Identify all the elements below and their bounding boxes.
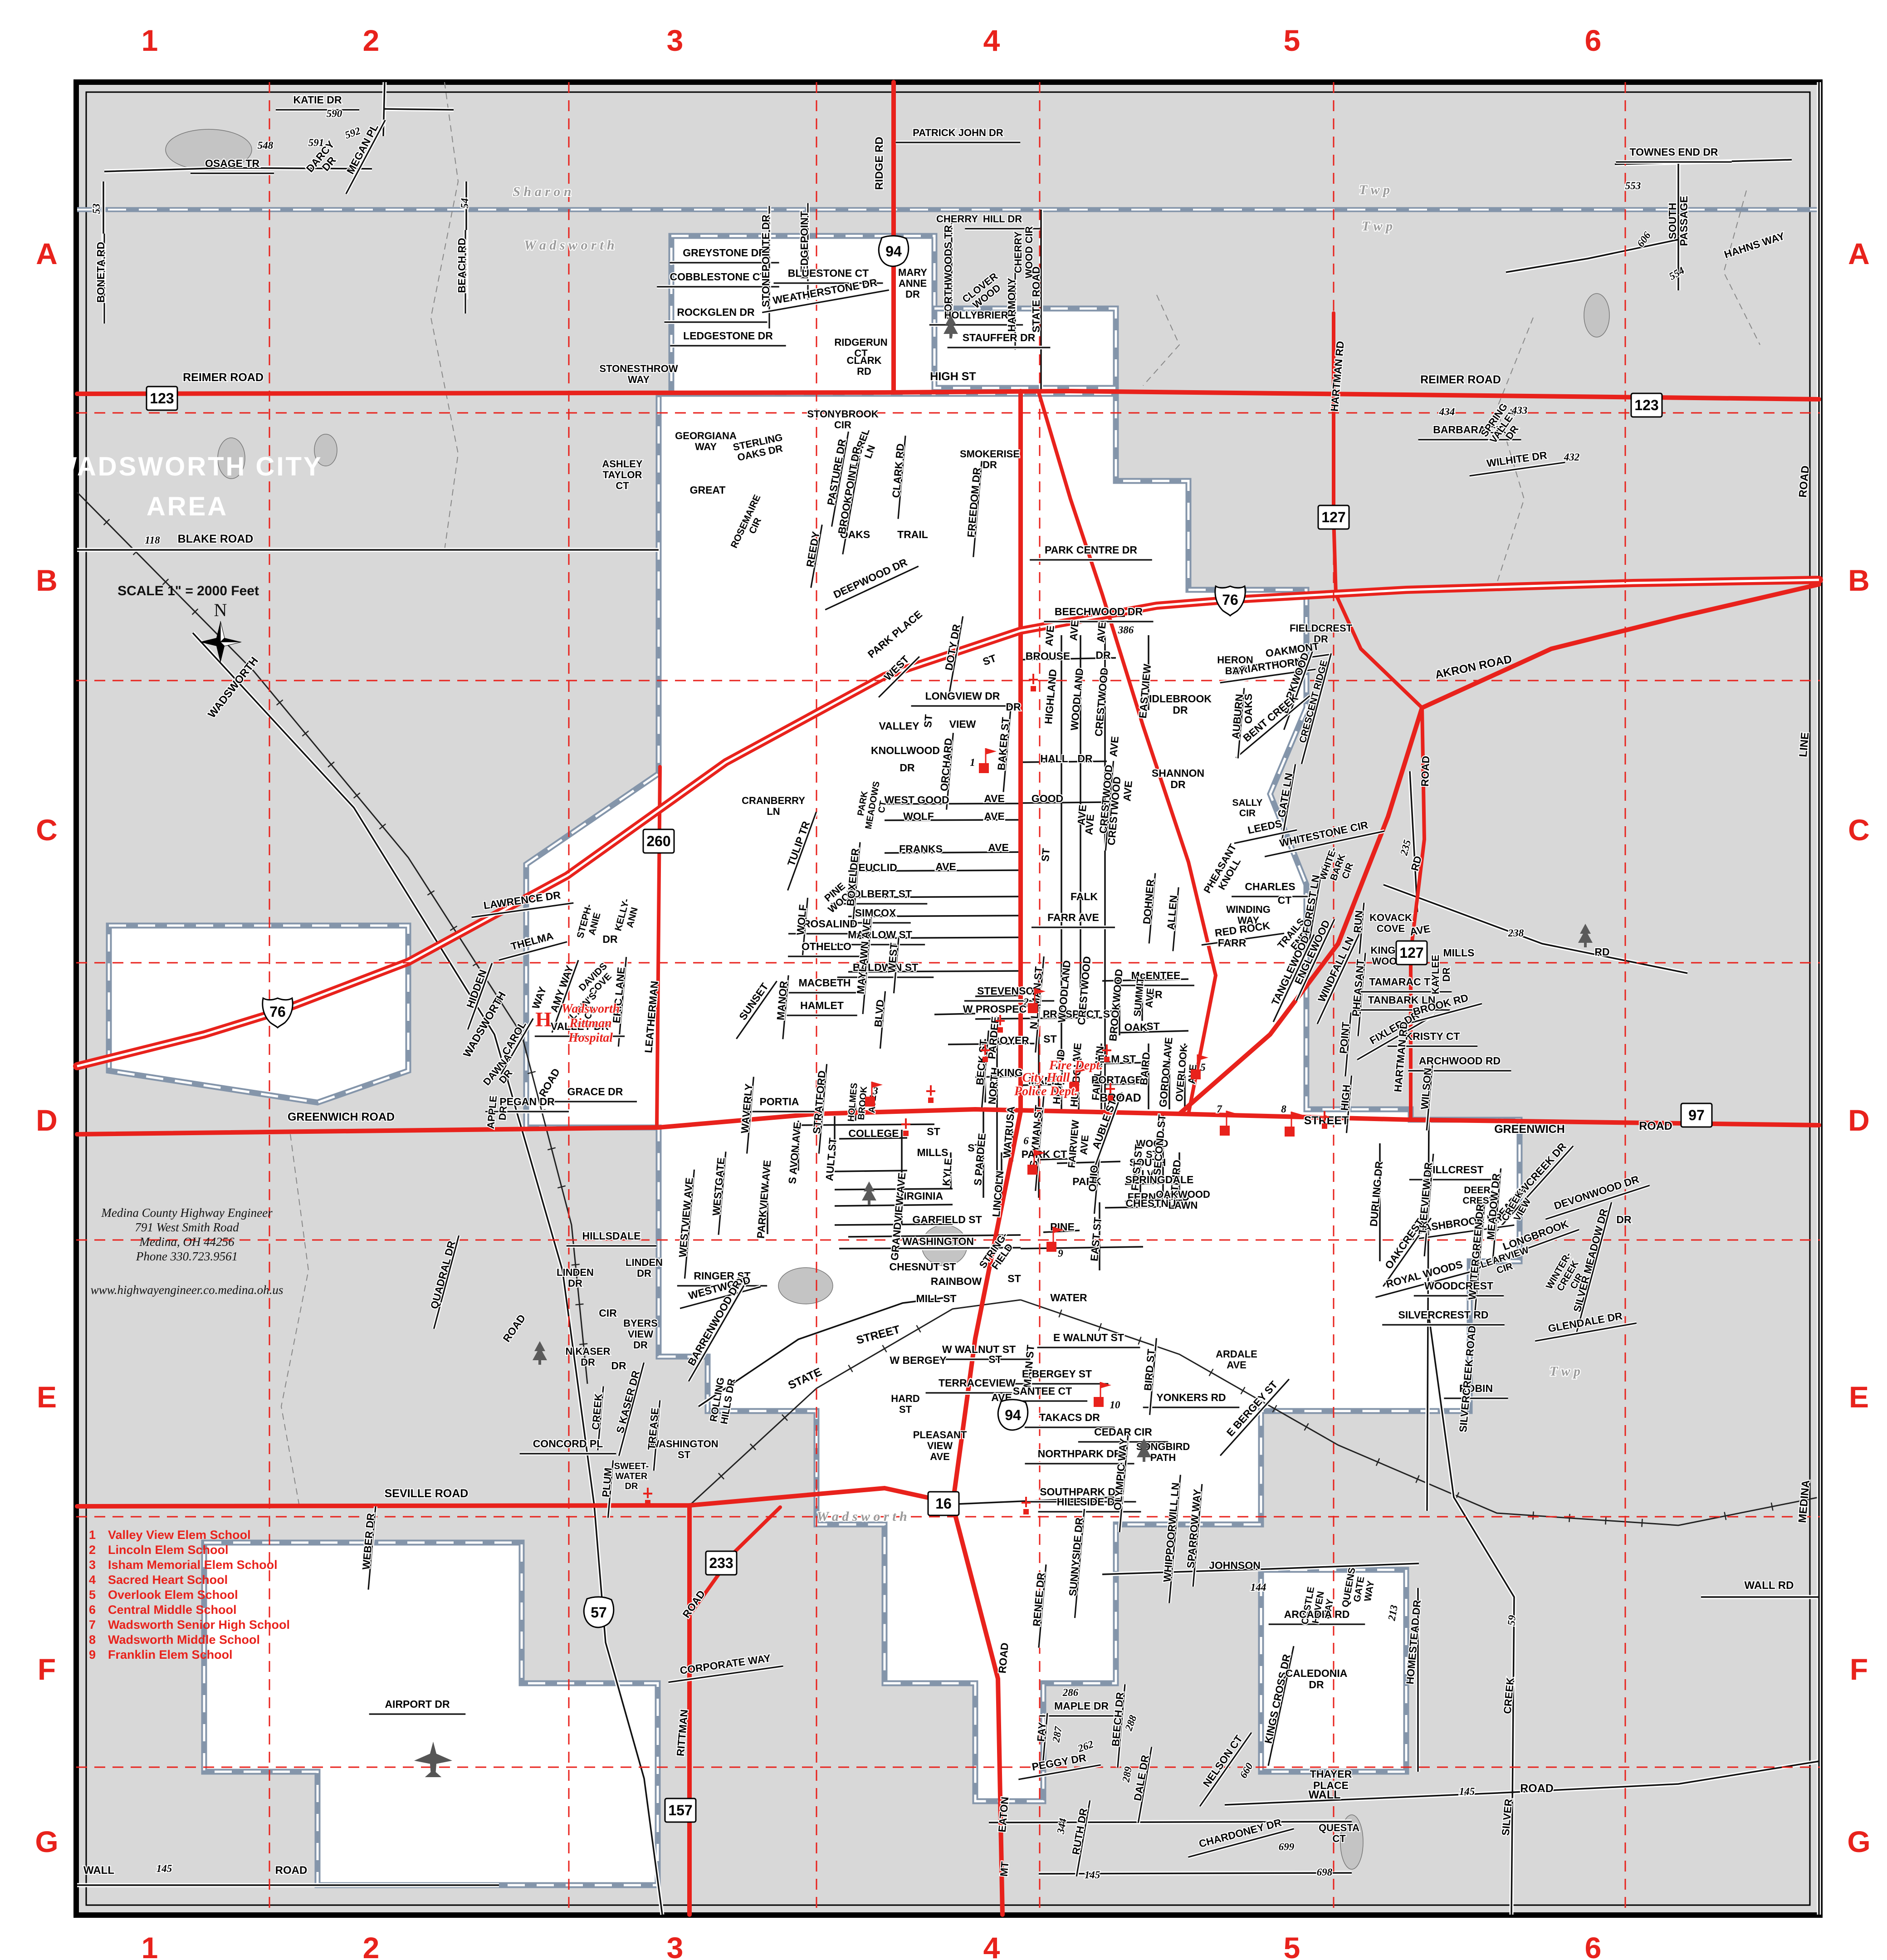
street-label: GREENWICH ROAD — [288, 1111, 395, 1123]
school-square — [1028, 1003, 1038, 1013]
railroad-tick — [579, 1344, 587, 1345]
shield-number: 123 — [150, 390, 174, 407]
street-label: 434 — [1439, 406, 1455, 417]
street-label: CIR — [599, 1307, 617, 1319]
grid-column-label-1: 1 — [142, 24, 158, 57]
street-label: 548 — [258, 140, 274, 151]
street-label: PORTAGE — [1091, 1074, 1142, 1086]
fire-dept-label: Fire Dept. — [1049, 1058, 1103, 1073]
street-label: 8 — [1281, 1103, 1286, 1115]
street-label: HAMLET — [800, 1000, 844, 1011]
street-label: 433 — [1511, 405, 1528, 416]
grid-row-label-A: A — [1848, 237, 1870, 270]
legend-item-number: 5 — [89, 1588, 96, 1602]
school-square — [865, 1097, 875, 1107]
grid-row-label-A: A — [36, 237, 58, 270]
grid-row-label-F: F — [38, 1652, 56, 1686]
street-label: FARR — [1218, 937, 1247, 949]
legend-item-name: Central Middle School — [108, 1603, 237, 1617]
grid-column-label-6: 6 — [1585, 24, 1602, 57]
grid-row-label-B: B — [1848, 563, 1870, 597]
street-label: ROAD — [1639, 1120, 1672, 1132]
street-label: ELM ST — [1098, 1053, 1136, 1065]
street-label: GOOD — [1031, 793, 1063, 804]
tree-trunk — [1584, 943, 1587, 947]
street-label: KRISTY CT — [1405, 1030, 1460, 1042]
school-square — [1285, 1127, 1295, 1137]
street-label: DR — [602, 933, 618, 945]
school-square — [1191, 1069, 1201, 1079]
street-label: AVE — [1107, 735, 1121, 757]
street-label: 6 — [1023, 1135, 1029, 1147]
street-label: DR — [611, 1360, 626, 1372]
road — [835, 1189, 953, 1190]
shield-number: 57 — [591, 1604, 607, 1621]
grid-column-label-5: 5 — [1284, 24, 1300, 57]
shield-number: 127 — [1399, 945, 1423, 961]
tree-trunk — [868, 1200, 870, 1205]
street-label: CONCORD PL — [533, 1438, 603, 1450]
street-label: HALL — [1040, 753, 1068, 764]
street-label: ST — [1043, 1033, 1056, 1045]
grid-column-label-3: 3 — [667, 1931, 684, 1960]
street-label: BONETA RD — [95, 242, 107, 303]
railroad-tick — [576, 1304, 584, 1305]
street-label: CT — [1278, 894, 1292, 906]
street-label: COLLEGE — [848, 1127, 899, 1139]
shield-number: 127 — [1321, 509, 1345, 525]
info-line-3: Phone 330.723.9561 — [136, 1249, 238, 1263]
legend-item-number: 7 — [89, 1618, 96, 1632]
street-label: JOHNSON — [1209, 1559, 1261, 1571]
legend-item-name: Lincoln Elem School — [108, 1543, 229, 1557]
street-label: COBBLESTONE CT — [670, 271, 767, 283]
grid-column-label-4: 4 — [983, 1931, 1000, 1960]
street-label: GREENWICH — [1494, 1123, 1565, 1136]
grid-row-label-G: G — [35, 1825, 58, 1858]
street-label: LINE — [1797, 732, 1812, 758]
info-line-2: Medina, OH 44256 — [139, 1235, 235, 1249]
hospital-h-icon: H — [535, 1008, 552, 1031]
grid-column-label-4: 4 — [983, 24, 1000, 57]
street-label: RUN — [1351, 910, 1365, 933]
shield-ohio-57: 57 — [584, 1597, 614, 1627]
shield-square-97: 97 — [1681, 1103, 1712, 1127]
street-label: AVE — [1067, 619, 1081, 641]
lake — [778, 1268, 833, 1304]
tree-trunk — [538, 1360, 541, 1365]
legend-item-number: 1 — [89, 1528, 96, 1542]
railroad-tick — [1569, 1514, 1569, 1522]
street-label: NORTHPARK DR — [1038, 1448, 1122, 1460]
grid-column-label-2: 2 — [363, 24, 380, 57]
street-label: E BERGEY ST — [1022, 1368, 1092, 1380]
grid-column-label-5: 5 — [1284, 1931, 1300, 1960]
legend-item-number: 6 — [89, 1603, 96, 1617]
street-label: RAINBOW — [931, 1275, 982, 1287]
grid-row-label-E: E — [1849, 1380, 1869, 1414]
shield-square-127: 127 — [1396, 941, 1427, 965]
street-label: DR — [1616, 1214, 1632, 1225]
street-label: 54 — [459, 198, 470, 209]
street-label: WALL — [83, 1864, 114, 1877]
street-label: SIMCOX — [855, 907, 896, 919]
street-label: EUCLID — [858, 862, 897, 873]
map-page: KATIE DROSAGE TRDARCYDRMEGAN PL590548591… — [0, 0, 1887, 1960]
street-label: OTHELLO — [802, 941, 851, 952]
church-square — [1322, 1123, 1327, 1129]
info-line-1: 791 West Smith Road — [135, 1220, 239, 1234]
info-line-0: Medina County Highway Engineer — [101, 1206, 273, 1220]
street-label: 386 — [1118, 624, 1134, 636]
street-label: ST — [1146, 1020, 1159, 1032]
street-label: W BERGEY — [890, 1354, 946, 1366]
street-label: AVE — [1121, 780, 1134, 802]
street-label: RIDGE RD — [873, 137, 885, 190]
church-square — [1031, 686, 1036, 691]
street-label: CHARLES — [1245, 881, 1295, 892]
street-label: 145 — [156, 1863, 172, 1874]
street-label: 145 — [1459, 1786, 1475, 1797]
grid-row-label-F: F — [1850, 1652, 1868, 1686]
street-label: 699 — [1279, 1841, 1295, 1852]
street-label: TAKACS DR — [1039, 1411, 1100, 1423]
street-label: WATER — [1050, 1292, 1087, 1303]
street-label: MILLS — [917, 1147, 948, 1158]
shield-number: 94 — [1005, 1407, 1021, 1423]
shield-number: 97 — [1688, 1107, 1705, 1123]
shield-square-123: 123 — [147, 387, 177, 410]
street-label: MAPLE DR — [1054, 1700, 1109, 1712]
street-label: HIGH — [1339, 1084, 1353, 1112]
shield-number: 157 — [668, 1802, 692, 1818]
shield-number: 94 — [885, 243, 902, 260]
legend-item-name: Isham Memorial Elem School — [108, 1558, 278, 1572]
street-label: 286 — [1062, 1687, 1079, 1698]
street-label: STATE ROAD — [1030, 266, 1042, 333]
street-label: WASHINGTON — [902, 1235, 974, 1247]
legend-item-number: 8 — [89, 1633, 96, 1646]
street-label: FAY — [1035, 1722, 1048, 1742]
street-label: HILL DR — [983, 213, 1022, 225]
street-label: BROUSE — [1026, 650, 1070, 662]
street-label: PARK CENTRE DR — [1045, 544, 1137, 556]
church-square — [1023, 1509, 1029, 1514]
street-label: GREAT — [690, 484, 726, 496]
street-label: TRAIL — [897, 529, 928, 540]
street-label: HOLLYBRIER — [944, 309, 1008, 321]
street-label: AVE — [984, 810, 1005, 822]
street-label: TAMARAC TR — [1369, 976, 1438, 988]
shield-square-233: 233 — [706, 1551, 737, 1575]
scale-text: SCALE 1" = 2000 Feet — [117, 583, 259, 598]
street-label: KNOLLWOOD — [871, 745, 940, 756]
grid-row-label-E: E — [37, 1380, 57, 1414]
street-label: S h a r o n — [513, 184, 571, 199]
street-label: ARCHWOOD RD — [1419, 1055, 1501, 1067]
hospital-label: Rittman — [569, 1016, 611, 1030]
street-label: CEDAR CIR — [1094, 1426, 1152, 1438]
street-label: FALK — [1071, 891, 1098, 902]
street-label: 145 — [1085, 1869, 1100, 1881]
street-label: 118 — [145, 534, 160, 546]
school-square — [1027, 1165, 1037, 1175]
shield-number: 76 — [1222, 592, 1238, 608]
church-square — [997, 1027, 1003, 1033]
street-label: W WALNUT ST — [942, 1343, 1016, 1355]
street-label: MT — [998, 1861, 1011, 1877]
street-label: SANTEE CT — [1013, 1385, 1072, 1397]
street-label: AVE — [935, 861, 956, 872]
wadsworth-city-area-map: KATIE DROSAGE TRDARCYDRMEGAN PL590548591… — [0, 0, 1887, 1960]
city-hall-police-label: City Hall — [1022, 1071, 1070, 1085]
street-label: NORTHWOODS TR — [942, 225, 954, 319]
street-label: SOUTHPASSAGE — [1667, 196, 1690, 246]
street-label: DR — [1095, 649, 1111, 661]
street-label: 59 — [1506, 1614, 1518, 1626]
street-label: ROCKGLEN DR — [677, 306, 755, 318]
street-label: LONGVIEW DR — [925, 690, 1000, 702]
street-label: REIMER ROAD — [1420, 373, 1501, 386]
street-label: YONKERS RD — [1156, 1392, 1226, 1403]
shield-number: 123 — [1634, 397, 1658, 413]
street-label: 144 — [1251, 1582, 1266, 1593]
street-label: THAYERPLACE — [1310, 1768, 1352, 1791]
legend-item-name: Sacred Heart School — [108, 1573, 228, 1587]
shield-square-260: 260 — [643, 829, 674, 853]
shield-square-16: 16 — [928, 1492, 959, 1515]
church-square — [645, 1500, 650, 1505]
street-label: 591 — [308, 137, 324, 148]
street-label: 1 — [970, 757, 975, 768]
compass-north-label: N — [214, 600, 227, 620]
street-label: SPRINGDALE — [1125, 1174, 1194, 1186]
shield-number: 260 — [646, 833, 670, 849]
school-square — [1094, 1397, 1104, 1407]
street-label: HILLSDALE — [582, 1230, 640, 1242]
street-label: HARMONY — [1006, 278, 1017, 332]
lake — [1584, 294, 1609, 337]
church-square — [1104, 1057, 1110, 1062]
grid-column-label-1: 1 — [142, 1931, 158, 1960]
street-label: ROAD — [275, 1864, 308, 1877]
street-label: CHESNUT ST — [890, 1261, 956, 1273]
church-square — [928, 1098, 934, 1103]
tree-trunk — [949, 334, 952, 338]
street-label: STAUFFER DR — [963, 332, 1036, 343]
street-label: GRACE DR — [567, 1086, 623, 1098]
school-square — [979, 763, 989, 773]
street-label: T w p — [1359, 182, 1390, 197]
street-label: W PROSPECT — [963, 1003, 1033, 1015]
street-label: RD — [1594, 946, 1609, 958]
grid-column-label-3: 3 — [667, 24, 684, 57]
street-label: PEGAN DR — [499, 1096, 555, 1107]
street-label: KING — [997, 1067, 1023, 1078]
legend-item-name: Overlook Elem School — [108, 1588, 238, 1602]
street-label: PATRICK JOHN DR — [913, 127, 1003, 138]
street-label: REIMER ROAD — [183, 371, 264, 384]
street-label: GREYSTONE DR — [683, 247, 766, 259]
street-label: ROSALIND — [803, 918, 857, 930]
street-label: T w p — [1362, 219, 1393, 234]
street-label: ROAD — [1419, 755, 1432, 787]
school-square — [1046, 1242, 1056, 1252]
street-label: TERRACEVIEW — [939, 1377, 1016, 1389]
street-label: KYLE — [940, 1158, 954, 1186]
info-url: www.highwayengineer.co.medina.oh.us — [91, 1283, 284, 1297]
shield-square-123: 123 — [1631, 393, 1662, 417]
legend-item-number: 3 — [89, 1558, 96, 1572]
street-label: PORTIA — [760, 1096, 799, 1107]
street-label: ROAD — [1520, 1782, 1554, 1795]
street-label: 53 — [91, 204, 102, 214]
legend-item-name: Wadsworth Middle School — [108, 1633, 260, 1646]
church-square — [983, 1057, 988, 1062]
shield-number: 76 — [269, 1004, 286, 1020]
street-label: W a d s w o r t h — [816, 1509, 907, 1524]
legend-item-number: 9 — [89, 1648, 96, 1661]
grid-row-label-D: D — [36, 1103, 58, 1137]
street-label: W a d s w o r t h — [524, 238, 615, 253]
street-label: BLAKE ROAD — [178, 533, 254, 545]
railroad-tick — [1642, 1519, 1642, 1527]
street-label: MARLOW ST — [848, 929, 912, 941]
hospital-label: Hospital — [568, 1031, 613, 1045]
street-label: ARCADIA RD — [1284, 1608, 1350, 1620]
shield-square-157: 157 — [665, 1798, 696, 1822]
street-label: CHERRY — [936, 213, 978, 225]
tree-trunk — [1143, 1457, 1145, 1462]
street-label: LEDGESTONE DR — [683, 330, 773, 342]
street-label: MACBETH — [799, 977, 851, 989]
legend-item-number: 2 — [89, 1543, 96, 1557]
grid-column-label-6: 6 — [1585, 1931, 1602, 1960]
street-label: 590 — [327, 108, 342, 119]
street-label: OSAGE TR — [205, 157, 260, 169]
street-label: BLUESTONE CT — [788, 267, 869, 279]
street-label: FARR AVE — [1047, 911, 1099, 923]
school-square — [1220, 1126, 1230, 1136]
street-label: BEECHWOOD DR — [1055, 606, 1143, 617]
street-label: GARFIELD ST — [912, 1214, 982, 1225]
shield-ohio-94: 94 — [879, 236, 909, 266]
street-label: ST — [988, 1353, 1002, 1365]
road — [383, 109, 454, 110]
street-label: SEVILLE ROAD — [385, 1487, 469, 1500]
street-label: ST — [927, 1126, 940, 1137]
street-label: AIRPORT DR — [385, 1698, 450, 1710]
railroad-tick — [1605, 1516, 1606, 1524]
shield-number: 16 — [935, 1495, 952, 1512]
railroad-tick — [1533, 1511, 1533, 1519]
shield-square-127: 127 — [1318, 505, 1349, 529]
road — [989, 1822, 1352, 1823]
street-label: OHIO — [1086, 1165, 1100, 1192]
street-label: E WALNUT ST — [1053, 1332, 1124, 1343]
street-label: WOODCREST — [1424, 1280, 1493, 1292]
street-label: 9 — [1058, 1248, 1063, 1259]
street-label: T w p — [1550, 1364, 1580, 1379]
street-label: AVE — [1083, 813, 1096, 835]
legend-item-number: 4 — [89, 1573, 96, 1587]
legend-item-name: Wadsworth Senior High School — [108, 1618, 290, 1632]
map-title-line1: WADSWORTH CITY — [52, 452, 323, 481]
church-square — [1108, 1095, 1113, 1101]
street-label: VIEW — [949, 718, 976, 730]
street-label: DR — [900, 762, 915, 774]
shield-number: 233 — [709, 1555, 733, 1571]
street-label: STONEPOINTE DR — [760, 215, 772, 307]
street-label: 7 — [1217, 1103, 1222, 1115]
grid-row-label-C: C — [1848, 813, 1870, 847]
map-title-line2: AREA — [147, 492, 228, 521]
street-label: PARK CT — [1022, 1148, 1067, 1160]
street-label: 238 — [1508, 927, 1524, 939]
street-label: HIGH ST — [930, 370, 976, 383]
city-hall-police-label: Police Dept. — [1014, 1084, 1078, 1098]
legend-item-name: Franklin Elem School — [108, 1648, 233, 1661]
legend-item-name: Valley View Elem School — [108, 1528, 251, 1542]
grid-column-label-2: 2 — [363, 1931, 380, 1960]
street-label: MILLS — [1443, 947, 1475, 959]
street-label: KATIE DR — [293, 94, 342, 106]
grid-row-label-C: C — [36, 813, 58, 847]
railroad-tick — [572, 1264, 580, 1265]
street-label: ST — [1007, 1273, 1021, 1284]
church-square — [903, 1131, 909, 1136]
street-label: 10 — [1110, 1399, 1121, 1411]
road — [835, 1171, 907, 1171]
street-label: 432 — [1564, 451, 1580, 463]
street-label: AVE — [1095, 621, 1108, 643]
street-label: AVE — [984, 793, 1005, 804]
street-label: SILVERCREST RD — [1398, 1309, 1489, 1321]
street-label: AVE — [988, 842, 1009, 853]
street-label: 5 — [1200, 1062, 1206, 1073]
street-label: ST — [922, 714, 934, 729]
street-label: WEST GOOD — [884, 794, 949, 806]
street-label: OAK — [1124, 1021, 1148, 1033]
street-label: ST — [1039, 848, 1052, 862]
street-label: DR — [1006, 701, 1021, 713]
street-label: BEACH RD — [456, 238, 468, 293]
shield-ohio-94: 94 — [998, 1400, 1028, 1430]
street-label: WALL RD — [1745, 1579, 1794, 1592]
street-label: MILL ST — [916, 1293, 956, 1304]
street-label: DR — [1077, 753, 1093, 764]
street-label: FRANKS — [899, 843, 943, 855]
hospital-label: Wadsworth — [562, 1002, 620, 1016]
street-label: WOLF — [903, 810, 934, 822]
grid-row-label-G: G — [1847, 1825, 1870, 1858]
street-label: TOWNES END DR — [1629, 146, 1718, 158]
street-label: 698 — [1317, 1867, 1333, 1878]
street-label: 553 — [1625, 180, 1641, 191]
grid-row-label-D: D — [1848, 1103, 1870, 1137]
street-label: VALLEY — [879, 720, 919, 732]
street-label: BLVD — [872, 999, 886, 1028]
street-label: AVE — [1043, 625, 1056, 647]
grid-row-label-B: B — [36, 563, 58, 597]
